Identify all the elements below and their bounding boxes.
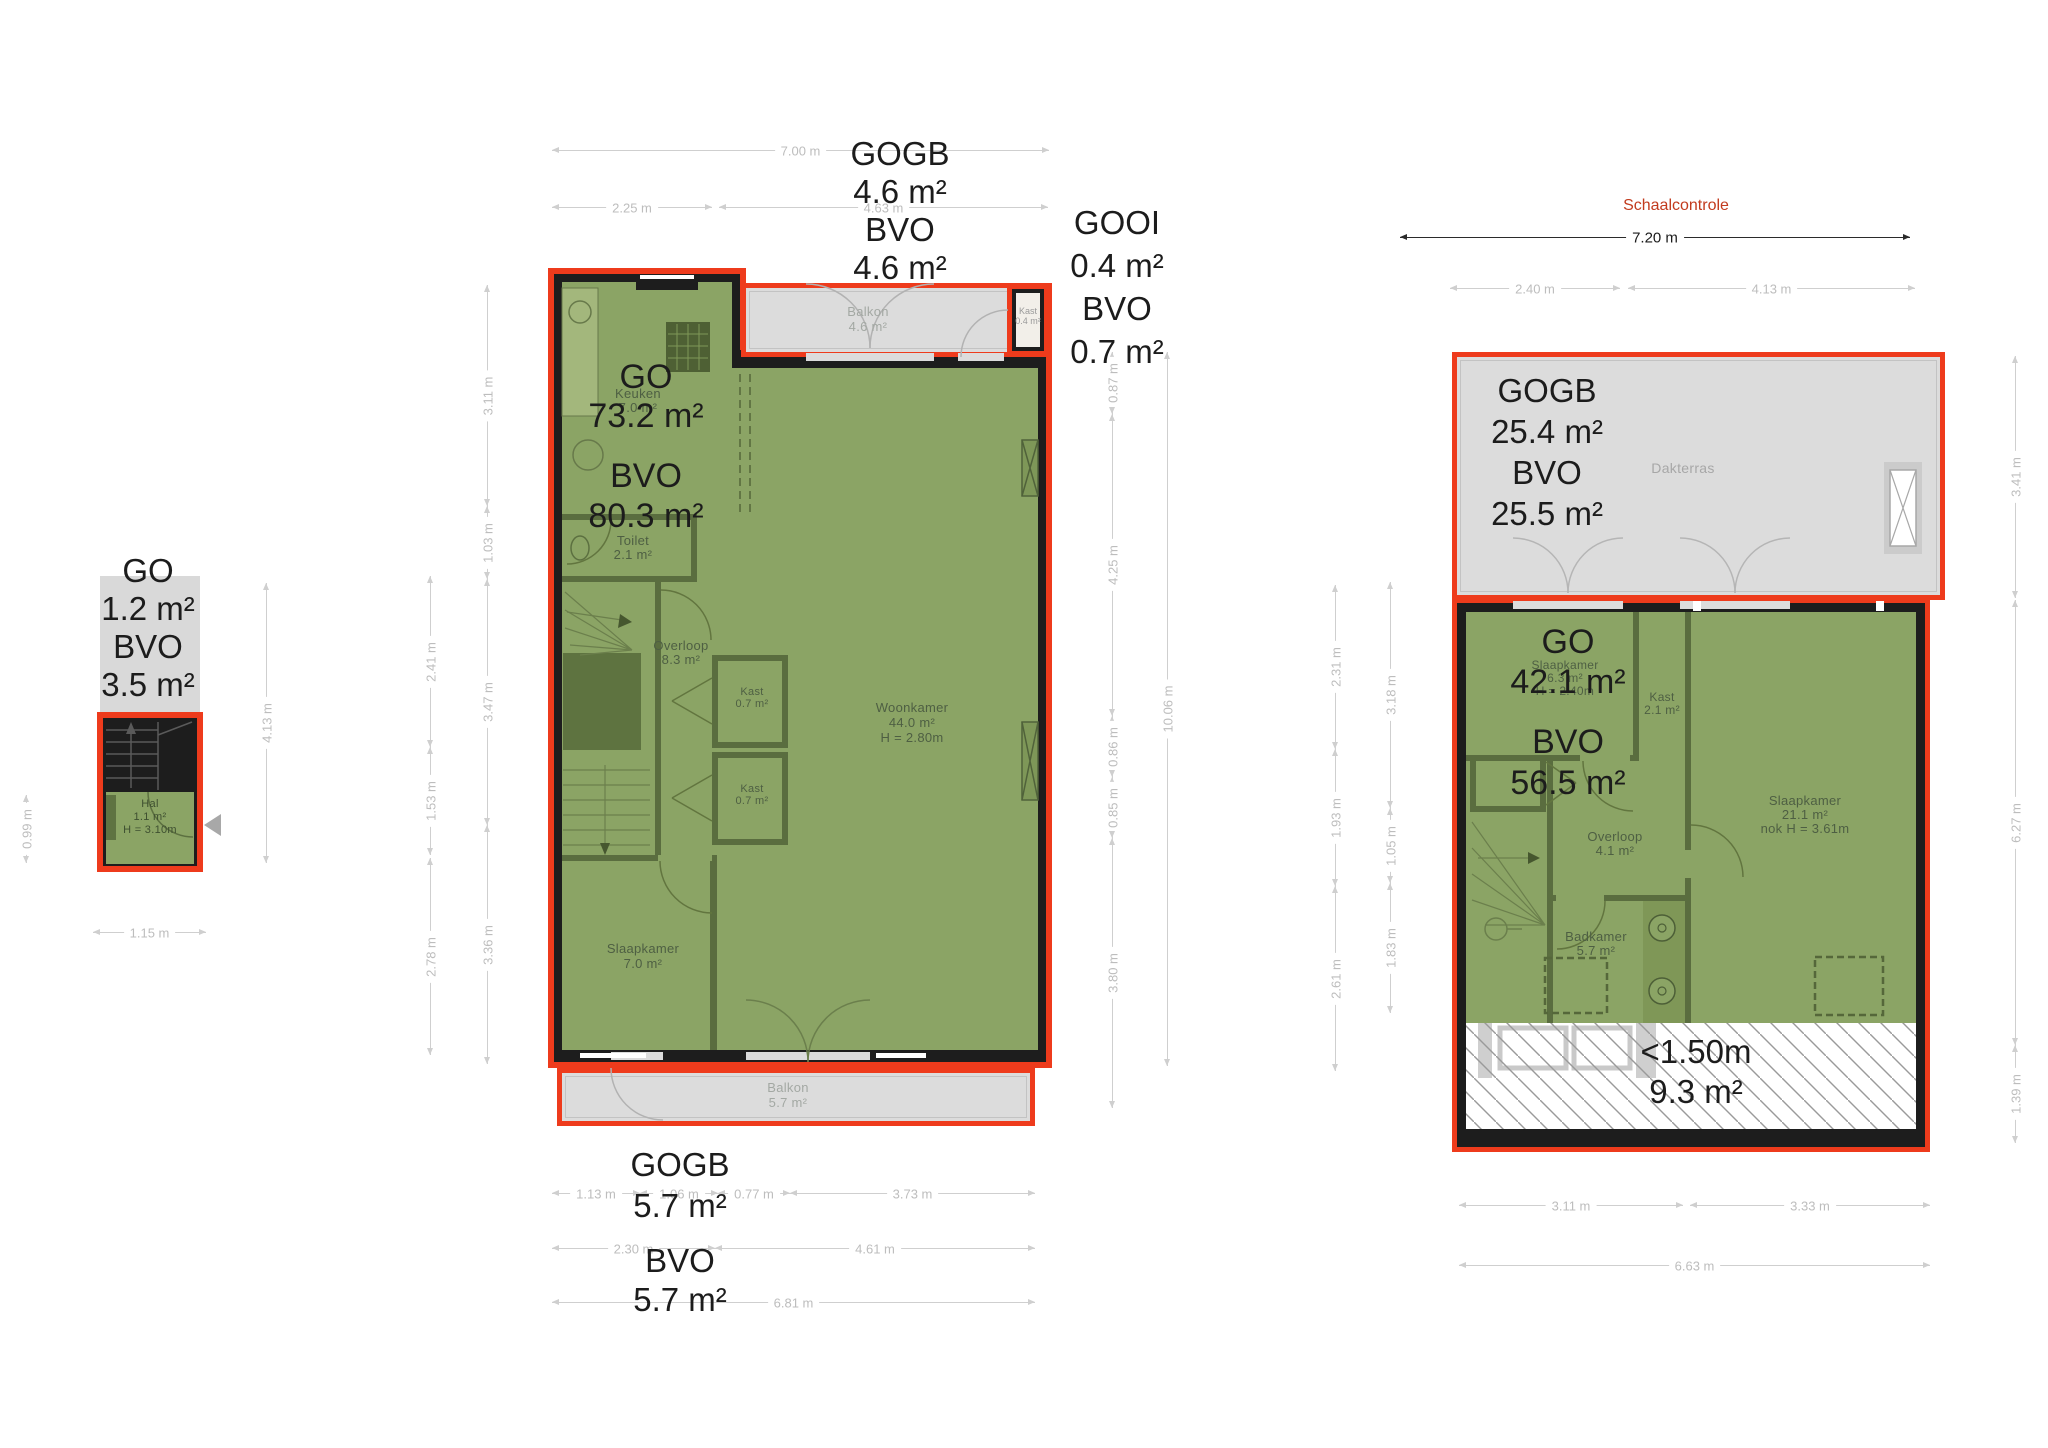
- room-label-dakterras: Dakterras: [1633, 461, 1733, 476]
- room-label-balkon-top: Balkon 4.6 m²: [818, 304, 918, 334]
- area-summary-f2-bvo: BVO 56.5 m²: [1468, 722, 1668, 804]
- room-label-overloop-f2: Overloop 4.1 m²: [1565, 830, 1665, 858]
- stair-landing: [563, 653, 641, 750]
- dim: 0.85 m: [1112, 777, 1113, 838]
- dim: 3.36 m: [487, 825, 488, 1064]
- dim: 1.05 m: [1390, 808, 1391, 883]
- area-summary-f1-balkon-bottom-gogb: GOGB 5.7 m²: [580, 1144, 780, 1226]
- room-label-toilet: Toilet 2.1 m²: [583, 534, 683, 562]
- dim: 10.06 m: [1167, 352, 1168, 1066]
- dim: 6.27 m: [2015, 600, 2016, 1045]
- dim: 1.39 m: [2015, 1045, 2016, 1143]
- room-label-badkamer: Badkamer 5.7 m²: [1546, 930, 1646, 958]
- dim: 3.80 m: [1112, 838, 1113, 1108]
- wall: [1604, 895, 1691, 901]
- area-summary-f1-bvo: BVO 80.3 m²: [546, 456, 746, 536]
- area-label: GO: [48, 552, 248, 590]
- room-label-overloop: Overloop 8.3 m²: [631, 639, 731, 667]
- room-label-slaapkamer: Slaapkamer 7.0 m²: [593, 941, 693, 971]
- area-summary-f1-go: GO 73.2 m²: [546, 358, 746, 436]
- area-value: 3.5 m²: [48, 666, 248, 704]
- area-value: 1.2 m²: [48, 590, 248, 628]
- dim: 4.13 m: [1628, 288, 1915, 289]
- entrance-arrow-icon: [204, 814, 221, 836]
- dim: 3.11 m: [487, 285, 488, 506]
- wall: [655, 582, 661, 855]
- dim: 0.86 m: [1112, 716, 1113, 777]
- dim-scale-check: 7.20 m: [1400, 237, 1910, 238]
- dim: 2.78 m: [430, 858, 431, 1055]
- dim-hal-right: 4.13 m: [266, 583, 267, 863]
- room-label-woonkamer: Woonkamer 44.0 m² H = 2.80m: [862, 700, 962, 745]
- wall: [1685, 612, 1691, 850]
- dim: 3.47 m: [487, 579, 488, 825]
- dim: 4.25 m: [1112, 414, 1113, 716]
- room-label-hal: Hal 1.1 m² H = 3.10m: [98, 798, 202, 837]
- area-summary-f2-terrace: GOGB 25.4 m² BVO 25.5 m²: [1447, 370, 1647, 534]
- wall: [562, 576, 697, 582]
- area-summary-f2-go: GO 42.1 m²: [1468, 622, 1668, 702]
- wall: [710, 861, 717, 1050]
- dim: 6.63 m: [1459, 1265, 1930, 1266]
- dim: 3.11 m: [1459, 1205, 1683, 1206]
- area-summary-f1-balkon-bottom-bvo: BVO 5.7 m²: [580, 1241, 780, 1319]
- area-summary-hal: GO 1.2 m² BVO 3.5 m²: [48, 552, 248, 704]
- shower-column: [1643, 901, 1685, 1023]
- dim-hal-left: 0.99 m: [26, 795, 27, 863]
- area-summary-f1-kast: GOOI 0.4 m² BVO 0.7 m²: [1017, 201, 1217, 373]
- area-summary-f1-balkon: GOGB 4.6 m² BVO 4.6 m²: [800, 135, 1000, 287]
- dim: 1.93 m: [1335, 749, 1336, 886]
- dim: 2.31 m: [1335, 585, 1336, 749]
- wall: [562, 855, 658, 861]
- room-label-kast1: Kast 0.7 m²: [712, 686, 792, 710]
- dim: 1.53 m: [430, 747, 431, 855]
- dim: 3.41 m: [2015, 356, 2016, 598]
- window-bar: [636, 282, 698, 290]
- area-label: BVO: [48, 628, 248, 666]
- floorplan-sheet: GO 1.2 m² BVO 3.5 m² Hal 1.1 m² H = 3.10…: [0, 0, 2048, 1448]
- room-label-kast2: Kast 0.7 m²: [712, 783, 792, 807]
- dim-hal-bottom: 1.15 m: [93, 932, 206, 933]
- dim: 1.03 m: [487, 506, 488, 579]
- scale-check-title: Schaalcontrole: [1576, 197, 1776, 215]
- dim: 2.61 m: [1335, 886, 1336, 1071]
- dim: 3.18 m: [1390, 582, 1391, 808]
- dim: 2.41 m: [430, 576, 431, 747]
- dim: 2.25 m: [552, 207, 712, 208]
- dim: 2.40 m: [1450, 288, 1620, 289]
- dim: 3.33 m: [1690, 1205, 1930, 1206]
- room-label-balkon-bottom: Balkon 5.7 m²: [738, 1080, 838, 1110]
- dim: 1.83 m: [1390, 883, 1391, 1013]
- area-summary-f2-low-height: <1.50m 9.3 m²: [1596, 1032, 1796, 1112]
- room-label-slaapkamer2: Slaapkamer 21.1 m² nok H = 3.61m: [1755, 794, 1855, 836]
- dim: 3.73 m: [790, 1193, 1035, 1194]
